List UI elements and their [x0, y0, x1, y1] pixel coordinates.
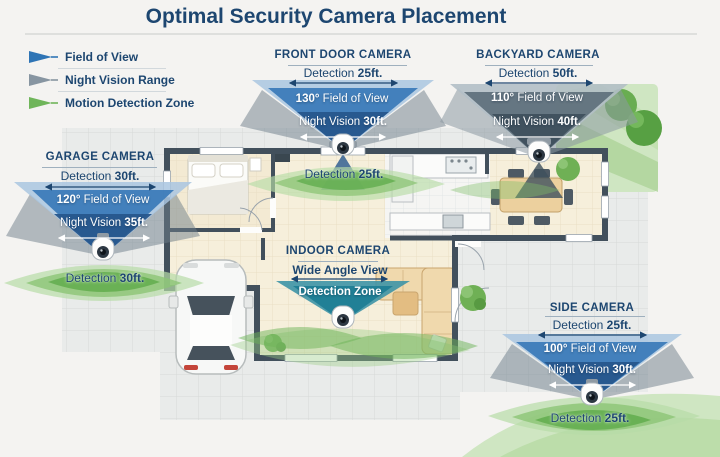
legend-item-motion-detection-zone: Motion Detection Zone [28, 92, 194, 114]
side-detection-range-label: Detection 25ft. [553, 319, 632, 333]
front-door-night-vision-label: Night Vision 30ft. [299, 116, 387, 129]
garage-fov-text: Field of View [84, 194, 150, 206]
backyard-nv-prefix: Night Vision [493, 116, 554, 128]
front-door-zone-value: 25ft. [359, 167, 384, 181]
garage-fov-value: 120° [57, 194, 81, 206]
backyard-camera-title: BACKYARD CAMERA [476, 49, 600, 62]
backyard-fov-value: 110° [491, 92, 514, 104]
indoor-camera-icon [332, 306, 354, 328]
side-camera-title: SIDE CAMERA [550, 302, 634, 315]
legend-item-field-of-view: Field of View [28, 46, 194, 68]
ottoman [393, 292, 418, 315]
garage-nv-prefix: Night Vision [60, 217, 121, 229]
legend: Field of View Night Vision Range Motion … [28, 46, 194, 114]
backyard-nv-value: 40ft. [557, 116, 581, 128]
backyard-detection-range-label: Detection 50ft. [499, 67, 578, 81]
side-fov-value: 100° [544, 343, 568, 355]
garage-motion-zone-label: Detection 30ft. [66, 272, 145, 286]
front-door-nv-value: 30ft. [363, 116, 387, 128]
side-nv-value: 30ft. [612, 364, 636, 376]
side-nv-prefix: Night Vision [548, 364, 609, 376]
indoor-title-underline [298, 261, 378, 262]
backyard-detection-value: 50ft. [553, 66, 578, 80]
bush-icon [460, 285, 486, 311]
front-door-fov-label: 130° Field of View [296, 93, 389, 106]
side-zone-value: 25ft. [605, 411, 630, 425]
garage-nv-value: 35ft. [124, 217, 148, 229]
indoor-view-label: Wide Angle View [292, 264, 387, 278]
backyard-detection-prefix: Detection [499, 66, 550, 80]
garage-night-vision-label: Night Vision 35ft. [60, 217, 148, 230]
night-vision-legend-icon [28, 73, 58, 87]
side-night-vision-label: Night Vision 30ft. [548, 364, 636, 377]
garage-title-underline [42, 167, 157, 168]
side-zone-prefix: Detection [551, 411, 602, 425]
garage-camera-title: GARAGE CAMERA [46, 151, 155, 164]
security-camera-infographic: Optimal Security Camera Placement Field … [0, 0, 720, 457]
backyard-night-vision-label: Night Vision 40ft. [493, 116, 581, 129]
side-fov-text: Field of View [571, 343, 637, 355]
indoor-view-text: Wide Angle View [292, 263, 387, 277]
side-fov-label: 100° Field of View [544, 343, 637, 356]
garage-detection-range-label: Detection 30ft. [61, 170, 140, 184]
title-divider [25, 33, 697, 35]
sink [443, 215, 463, 228]
side-detection-prefix: Detection [553, 318, 604, 332]
front-door-fov-value: 130° [296, 93, 320, 105]
indoor-camera-title: INDOOR CAMERA [286, 245, 390, 258]
front-door-camera-title: FRONT DOOR CAMERA [275, 49, 412, 62]
garage-fov-label: 120° Field of View [57, 194, 150, 207]
legend-label: Motion Detection Zone [65, 96, 194, 110]
backyard-camera-icon [527, 138, 551, 162]
garage-zone-value: 30ft. [120, 271, 145, 285]
side-motion-zone-label: Detection 25ft. [551, 412, 630, 426]
front-door-motion-zone-label: Detection 25ft. [305, 168, 384, 182]
legend-item-night-vision-range: Night Vision Range [28, 69, 194, 91]
backyard-fov-text: Field of View [517, 92, 583, 104]
front-door-detection-range-label: Detection 25ft. [304, 67, 383, 81]
legend-label: Night Vision Range [65, 73, 175, 87]
wall-vent [275, 154, 290, 162]
stove [446, 157, 476, 173]
motion-zone-legend-icon [28, 96, 58, 110]
field-of-view-legend-icon [28, 50, 58, 64]
garage-zone-prefix: Detection [66, 271, 117, 285]
bush-icon [556, 157, 580, 181]
front-door-detection-value: 25ft. [358, 66, 383, 80]
garage-detection-prefix: Detection [61, 169, 112, 183]
indoor-zone-label: Detection Zone [298, 286, 381, 299]
side-title-underline [545, 316, 645, 317]
garage-detection-value: 30ft. [115, 169, 140, 183]
side-detection-value: 25ft. [607, 318, 632, 332]
front-door-nv-prefix: Night Vision [299, 116, 360, 128]
legend-label: Field of View [65, 50, 138, 64]
indoor-zone-text: Detection Zone [298, 286, 381, 298]
backyard-fov-label: 110° Field of View [491, 92, 583, 105]
front-door-detection-prefix: Detection [304, 66, 355, 80]
page-title: Optimal Security Camera Placement [146, 5, 507, 29]
front-door-fov-text: Field of View [323, 93, 389, 105]
front-door-zone-prefix: Detection [305, 167, 356, 181]
